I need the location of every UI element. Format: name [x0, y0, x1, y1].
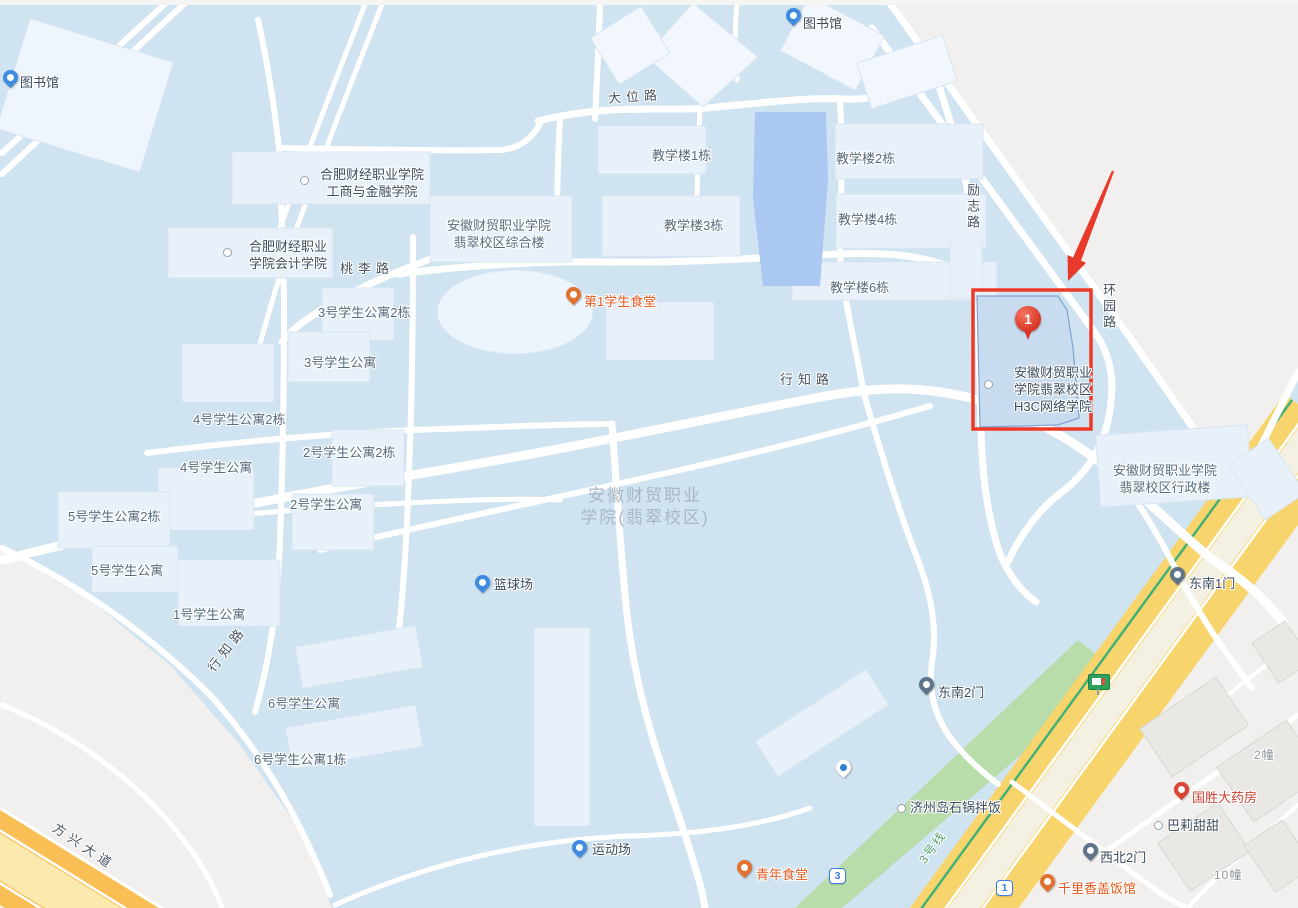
- jeju-dot-icon: [897, 804, 906, 813]
- bali-dot-icon: [1154, 821, 1163, 830]
- poi-library-top[interactable]: 图书馆: [803, 15, 842, 32]
- bldg-label-jxl2[interactable]: 教学楼2栋: [836, 150, 895, 167]
- bldg-label-zonghelou-line2: 翡翠校区综合楼: [436, 234, 562, 251]
- map[interactable]: 1 3 1 图书馆 图书馆 大位路 桃李路 行知路 行知路 励志路 环园路 方兴…: [0, 0, 1298, 908]
- poi-gate-nw2[interactable]: 西北2门: [1100, 849, 1146, 866]
- bldg-label-admin-line1: 安徽财贸职业学院: [1102, 462, 1228, 479]
- bldg-label-admin-line2: 翡翠校区行政楼: [1102, 479, 1228, 496]
- bus-stop-sign-icon: [1088, 674, 1110, 690]
- poi-hfcj-accounting-line2: 学院会计学院: [240, 255, 336, 272]
- campus-watermark-line1: 安徽财贸职业: [560, 485, 730, 507]
- hfcj-business-dot-icon: [300, 176, 309, 185]
- poi-pharmacy[interactable]: 国胜大药房: [1192, 789, 1257, 806]
- map-canvas: [0, 0, 1298, 908]
- bldg-label-2zhuang: 2幢: [1254, 748, 1275, 764]
- poi-hfcj-business[interactable]: 合肥财经职业学院 工商与金融学院: [310, 166, 434, 200]
- road-label-lizhi: 励志路: [964, 183, 981, 231]
- poi-h3c-line2: 学院翡翠校区: [1000, 381, 1106, 398]
- poi-hfcj-accounting[interactable]: 合肥财经职业 学院会计学院: [240, 238, 336, 272]
- poi-youth-canteen[interactable]: 青年食堂: [756, 866, 808, 883]
- result-marker-number: 1: [1024, 311, 1032, 327]
- bldg-label-dorm5-2[interactable]: 5号学生公寓2栋: [68, 508, 160, 525]
- bldg-label-jxl6[interactable]: 教学楼6栋: [830, 279, 889, 296]
- road-label-taoli: 桃李路: [340, 260, 394, 277]
- bldg-label-jxl4[interactable]: 教学楼4栋: [838, 211, 897, 228]
- bldg-label-dorm4[interactable]: 4号学生公寓: [180, 459, 252, 476]
- bldg-label-dorm3[interactable]: 3号学生公寓: [304, 354, 376, 371]
- poi-library-left[interactable]: 图书馆: [20, 74, 59, 91]
- h3c-dot-icon: [984, 380, 993, 389]
- route-badge-3: 3: [829, 868, 846, 884]
- bldg-label-zonghelou[interactable]: 安徽财贸职业学院 翡翠校区综合楼: [436, 217, 562, 251]
- poi-hfcj-business-line2: 工商与金融学院: [310, 183, 434, 200]
- bldg-label-dorm6[interactable]: 6号学生公寓: [268, 695, 340, 712]
- bldg-label-10zhuang: 10幢: [1214, 868, 1242, 884]
- hfcj-accounting-dot-icon: [223, 248, 232, 257]
- road-label-xingzhi-center: 行知路: [780, 371, 834, 388]
- bldg-label-dorm1[interactable]: 1号学生公寓: [173, 606, 245, 623]
- poi-canteen1[interactable]: 第1学生食堂: [584, 293, 656, 310]
- bldg-label-dorm5[interactable]: 5号学生公寓: [91, 562, 163, 579]
- poi-gate-se1[interactable]: 东南1门: [1189, 575, 1235, 592]
- poi-jeju[interactable]: 济州岛石锅拌饭: [910, 799, 1001, 816]
- poi-hfcj-accounting-line1: 合肥财经职业: [240, 238, 336, 255]
- bldg-label-dorm6-1[interactable]: 6号学生公寓1栋: [254, 751, 346, 768]
- campus-watermark-line2: 学院(翡翠校区): [560, 507, 730, 529]
- poi-h3c-line3: H3C网络学院: [1000, 398, 1106, 415]
- bldg-label-dorm4-2[interactable]: 4号学生公寓2栋: [193, 411, 285, 428]
- bldg-label-dorm2-2[interactable]: 2号学生公寓2栋: [303, 444, 395, 461]
- poi-bali[interactable]: 巴莉甜甜: [1167, 817, 1219, 834]
- result-marker-1[interactable]: 1: [1015, 306, 1041, 332]
- bldg-label-admin[interactable]: 安徽财贸职业学院 翡翠校区行政楼: [1102, 462, 1228, 496]
- route-badge-1: 1: [996, 880, 1013, 896]
- poi-basketball[interactable]: 篮球场: [494, 576, 533, 593]
- road-label-huanyuan: 环园路: [1100, 283, 1117, 331]
- bldg-label-dorm2[interactable]: 2号学生公寓: [290, 496, 362, 513]
- poi-h3c-college[interactable]: 安徽财贸职业 学院翡翠校区 H3C网络学院: [1000, 364, 1106, 415]
- bldg-label-dorm3-2[interactable]: 3号学生公寓2栋: [318, 304, 410, 321]
- poi-sports-field[interactable]: 运动场: [592, 841, 631, 858]
- poi-hfcj-business-line1: 合肥财经职业学院: [310, 166, 434, 183]
- poi-qianli[interactable]: 千里香盖饭馆: [1058, 880, 1136, 897]
- bldg-label-zonghelou-line1: 安徽财贸职业学院: [436, 217, 562, 234]
- campus-watermark: 安徽财贸职业 学院(翡翠校区): [560, 485, 730, 530]
- poi-h3c-line1: 安徽财贸职业: [1000, 364, 1106, 381]
- poi-gate-se2[interactable]: 东南2门: [938, 684, 984, 701]
- bldg-label-jxl1[interactable]: 教学楼1栋: [652, 147, 711, 164]
- bldg-label-jxl3[interactable]: 教学楼3栋: [664, 217, 723, 234]
